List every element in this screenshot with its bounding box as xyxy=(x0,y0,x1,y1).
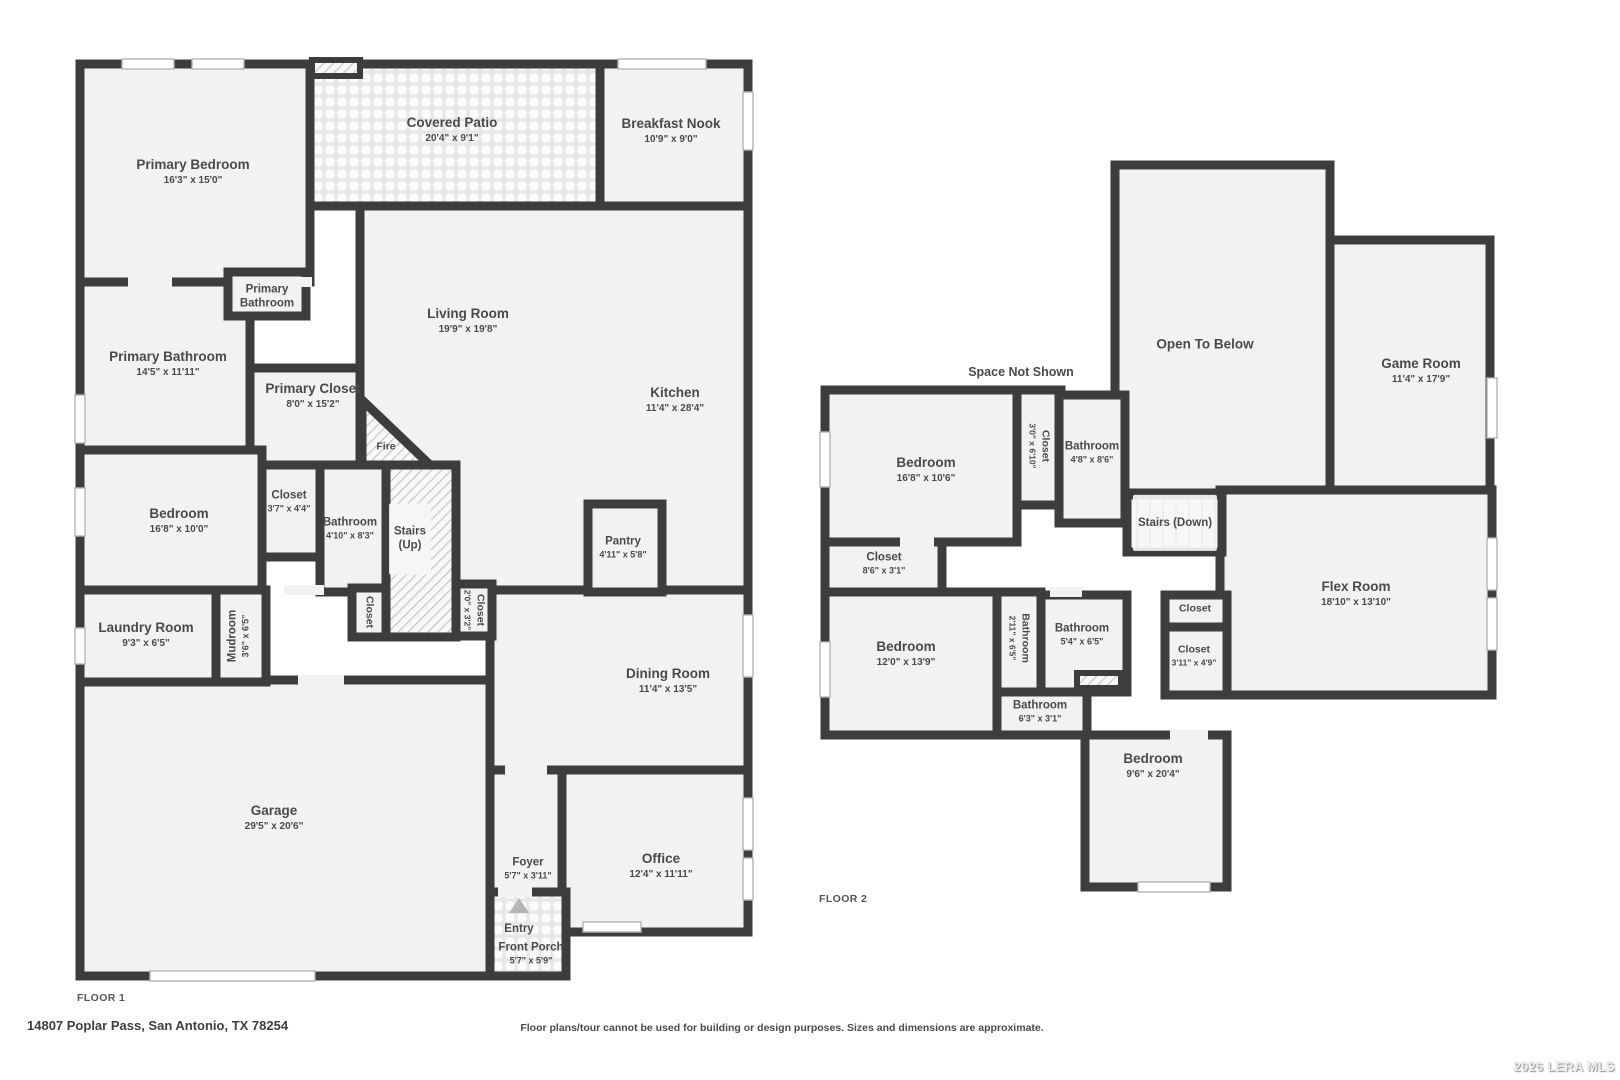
window-icon xyxy=(1487,538,1497,590)
window-icon xyxy=(743,92,753,150)
floorplan-drawing xyxy=(0,0,1620,1080)
window-icon xyxy=(618,59,706,69)
room-shape-bedroom-b xyxy=(825,592,997,735)
room-shape-bathroom-a-f2 xyxy=(1059,395,1125,523)
floor2-caption: FLOOR 2 xyxy=(819,893,867,905)
window-icon xyxy=(743,858,753,900)
floorplan-page: Primary Bedroom16'3" x 15'0" Covered Pat… xyxy=(0,0,1620,1080)
garage-door-icon xyxy=(150,971,315,981)
room-shape-closet-b-f2 xyxy=(825,542,942,592)
door-gap xyxy=(284,585,324,595)
room-shape-foyer xyxy=(490,770,562,892)
patio-step-shape xyxy=(312,60,360,76)
room-shape-stairs-down xyxy=(1127,495,1222,552)
window-icon xyxy=(122,59,174,69)
room-shape-laundry-room xyxy=(80,590,216,682)
room-shape-breakfast-nook xyxy=(600,64,748,214)
window-icon xyxy=(75,395,85,443)
window-icon xyxy=(820,432,830,487)
window-icon xyxy=(583,922,641,932)
room-shape-closet-a xyxy=(262,465,320,557)
space-not-shown-label: Space Not Shown xyxy=(968,365,1074,379)
door-gap xyxy=(1170,730,1208,740)
room-shape-closet-a-f2 xyxy=(1017,390,1061,505)
window-icon xyxy=(743,798,753,850)
room-shape-garage xyxy=(80,680,490,976)
window-icon xyxy=(1487,378,1497,438)
room-shape-bedroom-a xyxy=(825,390,1017,542)
door-gap xyxy=(900,537,934,547)
room-shape-bathroom xyxy=(320,465,386,592)
room-shape-closet-c xyxy=(456,584,492,636)
window-icon xyxy=(192,59,244,69)
door-gap xyxy=(498,887,532,897)
room-shape-dining-room xyxy=(490,590,748,770)
room-shape-closet-c-f2 xyxy=(1165,595,1227,627)
room-shape-mudroom xyxy=(216,590,266,682)
floor2-plan xyxy=(825,165,1492,887)
room-shape-flex-room xyxy=(1220,490,1492,695)
door-gap xyxy=(505,765,547,775)
room-shape-closet-b xyxy=(352,588,386,637)
room-shape-pantry xyxy=(588,504,662,592)
window-icon xyxy=(1138,882,1210,892)
room-shape-covered-patio xyxy=(310,64,600,206)
room-shape-primary-bedroom xyxy=(80,64,310,282)
window-icon xyxy=(743,615,753,677)
floor1-caption: FLOOR 1 xyxy=(77,992,125,1004)
window-icon xyxy=(1487,598,1497,650)
floor1-plan xyxy=(80,60,748,976)
shower-shape xyxy=(1077,673,1121,688)
property-address: 14807 Poplar Pass, San Antonio, TX 78254 xyxy=(27,1018,288,1033)
window-icon xyxy=(75,488,85,536)
disclaimer-text: Floor plans/tour cannot be used for buil… xyxy=(520,1022,1043,1034)
door-gap xyxy=(298,675,344,685)
room-shape-bathroom-hall xyxy=(997,592,1041,692)
mls-watermark: 2026 LERA MLS xyxy=(1514,1060,1615,1074)
door-gap xyxy=(128,277,172,287)
door-gap xyxy=(1050,587,1082,597)
room-shape-bedroom-c xyxy=(1085,735,1227,887)
door-gap xyxy=(268,277,312,287)
entry-direction-icon xyxy=(509,898,529,913)
room-shape-bathroom-c xyxy=(997,692,1087,735)
room-shape-closet-d-f2 xyxy=(1165,627,1227,695)
room-shape-stairs-up xyxy=(386,465,456,637)
room-shape-game-room xyxy=(1330,240,1490,492)
room-shape-open-to-below xyxy=(1115,165,1330,493)
room-shape-bedroom xyxy=(80,450,262,590)
window-icon xyxy=(75,628,85,664)
room-shape-office xyxy=(560,770,748,932)
window-icon xyxy=(820,642,830,697)
